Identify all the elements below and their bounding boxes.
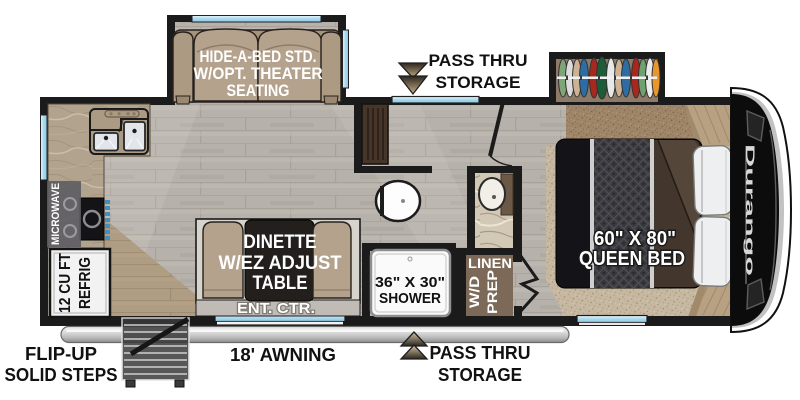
svg-text:FLIP-UP: FLIP-UP [25,344,97,364]
svg-text:PASS THRU: PASS THRU [429,51,528,70]
svg-text:QUEEN BED: QUEEN BED [579,248,685,270]
svg-text:LINEN: LINEN [468,255,512,271]
svg-text:SEATING: SEATING [227,81,290,100]
svg-text:STORAGE: STORAGE [436,73,521,92]
svg-text:REFRIG: REFRIG [77,257,94,309]
svg-text:18' AWNING: 18' AWNING [230,345,336,365]
svg-text:SHOWER: SHOWER [379,290,441,307]
svg-text:ENT. CTR.: ENT. CTR. [237,300,315,317]
svg-text:PREP: PREP [484,270,500,314]
svg-text:Durango: Durango [743,144,755,276]
svg-text:W/EZ ADJUST: W/EZ ADJUST [219,253,342,274]
svg-text:STORAGE: STORAGE [438,365,522,385]
svg-text:PASS THRU: PASS THRU [430,343,531,363]
svg-text:36" X 30": 36" X 30" [375,274,445,291]
svg-text:MICROWAVE: MICROWAVE [50,183,62,245]
svg-text:60" X 80": 60" X 80" [594,228,676,250]
svg-text:DINETTE: DINETTE [244,232,317,253]
svg-text:SOLID STEPS: SOLID STEPS [5,365,118,385]
svg-text:12 CU FT: 12 CU FT [57,253,74,313]
svg-text:TABLE: TABLE [253,273,308,294]
svg-text:W/D: W/D [466,276,482,308]
